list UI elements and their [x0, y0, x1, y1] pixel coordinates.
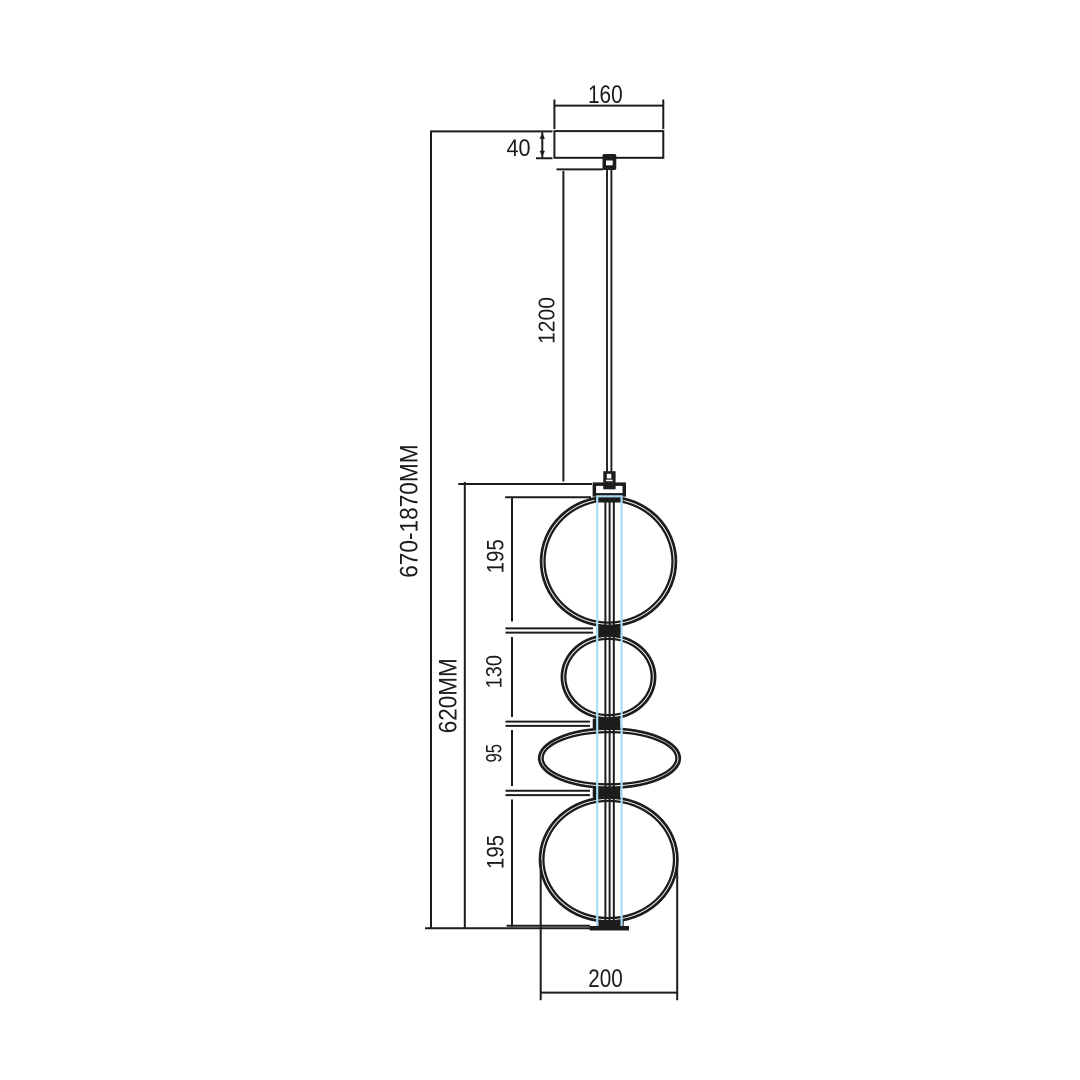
svg-text:95: 95 [482, 744, 507, 763]
svg-text:1200: 1200 [534, 297, 560, 344]
svg-text:200: 200 [588, 965, 623, 993]
svg-text:40: 40 [507, 135, 531, 162]
svg-text:195: 195 [482, 835, 509, 869]
svg-text:130: 130 [482, 655, 507, 688]
svg-text:195: 195 [482, 539, 509, 573]
svg-text:160: 160 [588, 81, 623, 109]
svg-text:670-1870MM: 670-1870MM [396, 444, 424, 577]
svg-text:620MM: 620MM [435, 658, 463, 733]
